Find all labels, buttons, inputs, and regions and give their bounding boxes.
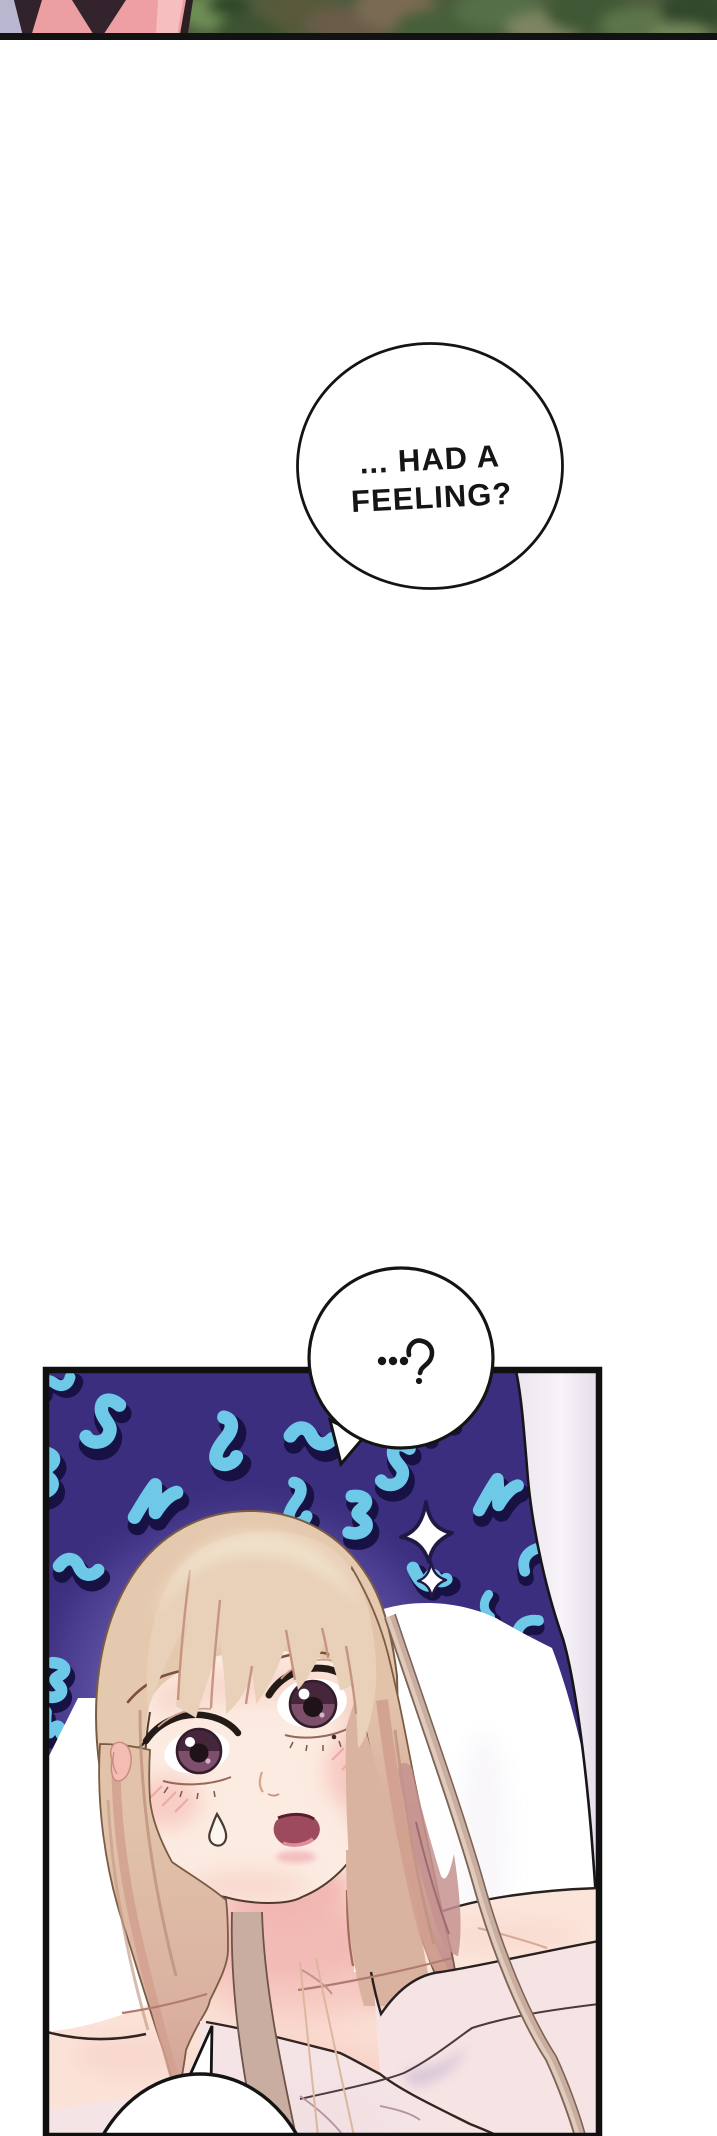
svg-text:... HAD A: ... HAD A	[359, 438, 501, 480]
